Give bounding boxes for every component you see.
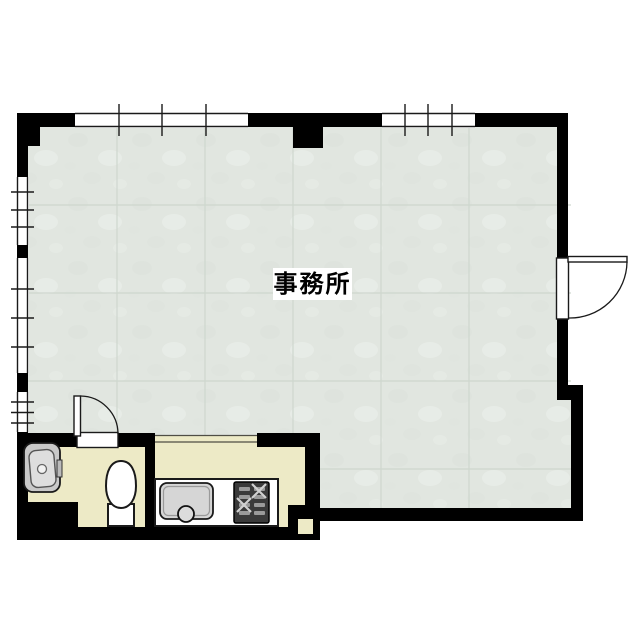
wall-divider xyxy=(145,447,155,527)
floorplan-canvas: 事務所 xyxy=(0,0,640,640)
kitchen-sink-icon xyxy=(160,483,213,522)
toilet-icon xyxy=(106,461,136,526)
room-label: 事務所 xyxy=(274,271,352,298)
bathroom-door-opening xyxy=(77,433,118,448)
wall-right-upper xyxy=(557,113,568,396)
entrance-door-opening xyxy=(557,258,569,319)
kitchen-counter xyxy=(155,479,278,526)
bathroom-door-leaf xyxy=(74,396,81,436)
wall-kitchen-top xyxy=(257,433,320,447)
floorplan-drawing: 事務所 xyxy=(0,0,640,640)
gas-stove-icon xyxy=(234,482,269,523)
wash-basin-icon xyxy=(24,443,62,492)
wall-bottom-right xyxy=(312,508,583,521)
wall-block-bottom-left xyxy=(17,502,78,540)
room-label-group: 事務所 xyxy=(273,268,352,300)
pipe-space-notch xyxy=(298,519,313,534)
wall-corner-top-left xyxy=(17,113,40,146)
pillar-top xyxy=(293,113,323,148)
wall-right-lower xyxy=(571,392,583,521)
entrance-door-swing-arc xyxy=(568,262,627,318)
entrance-door xyxy=(557,257,628,320)
entrance-door-leaf xyxy=(568,257,627,263)
